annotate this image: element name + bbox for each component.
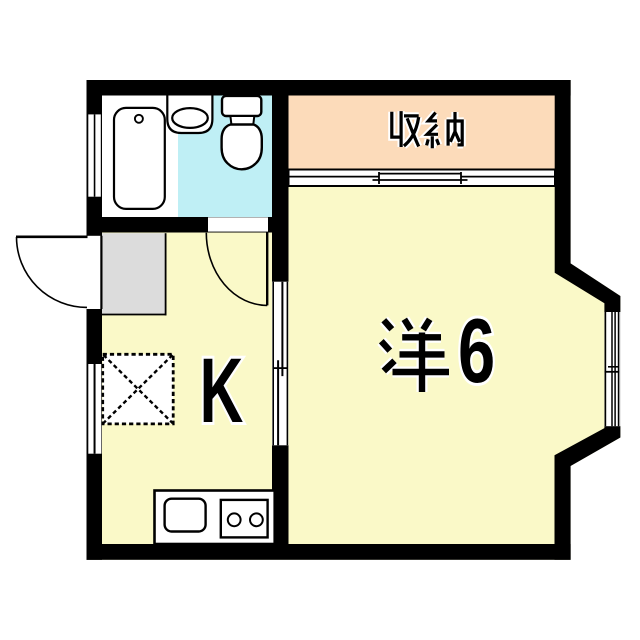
svg-text:K: K — [200, 340, 244, 442]
svg-text:6: 6 — [458, 300, 495, 401]
